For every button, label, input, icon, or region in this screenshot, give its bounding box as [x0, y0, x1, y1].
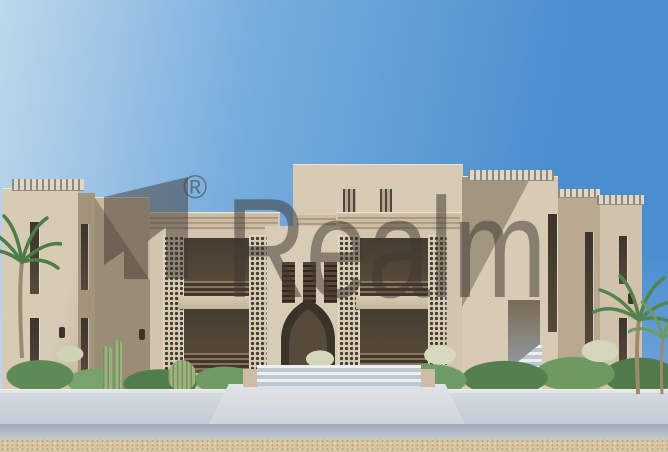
balcony-ledge [179, 296, 253, 309]
cornice-band [150, 214, 278, 230]
window-slit [548, 214, 557, 332]
cornice-band [338, 214, 460, 230]
window-slit [81, 224, 88, 290]
entrance-step-wall [420, 369, 435, 387]
entrance-step-wall [243, 369, 258, 387]
balcony-railing [360, 281, 430, 296]
rooftop-pergola [468, 170, 554, 181]
rooftop-pergola [558, 189, 600, 198]
palm-tree [628, 296, 668, 396]
listing-photo: ® Realm [0, 0, 668, 452]
window-shutter [282, 262, 295, 303]
sand-strip [0, 439, 668, 452]
palm-tree [0, 200, 62, 360]
column-cactus [114, 340, 122, 392]
column-cactus [103, 346, 112, 392]
barrel-cactus [168, 360, 196, 390]
balcony-railing [184, 281, 249, 296]
rooftop-pergola [12, 179, 84, 191]
window-shutter [303, 262, 316, 303]
entrance-steps [257, 365, 421, 386]
balcony-ledge [356, 296, 434, 309]
window-shutter [324, 262, 337, 303]
planter-wall [0, 389, 235, 427]
rooftop-pergola [597, 195, 644, 205]
